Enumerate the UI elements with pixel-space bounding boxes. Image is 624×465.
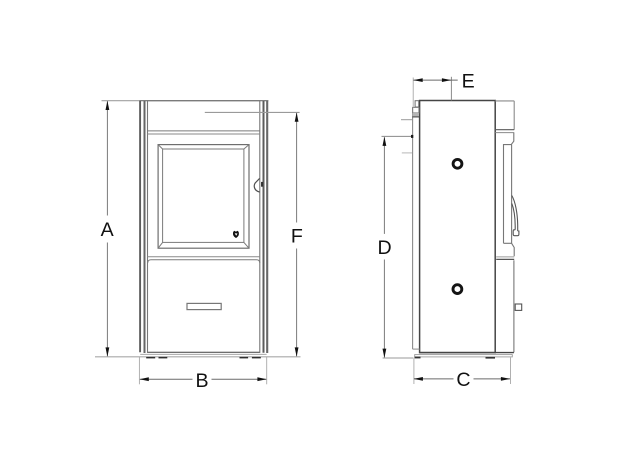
svg-text:B: B: [195, 370, 208, 392]
svg-text:E: E: [462, 71, 475, 93]
svg-text:A: A: [101, 219, 115, 241]
svg-text:C: C: [456, 369, 470, 391]
svg-text:F: F: [291, 225, 303, 247]
svg-text:D: D: [378, 237, 392, 259]
